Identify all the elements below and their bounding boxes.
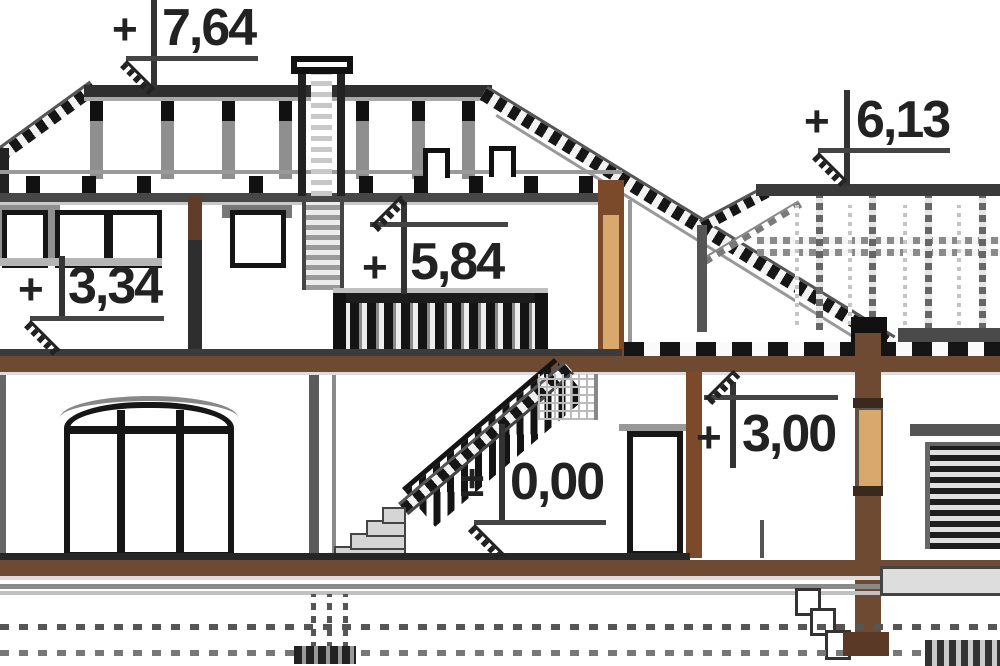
roof-joist bbox=[579, 176, 593, 194]
door-lintel bbox=[619, 424, 689, 431]
wood-frame-wall-tan-infill bbox=[603, 215, 619, 349]
marker-leader-line bbox=[474, 520, 606, 525]
floor-slab-underline bbox=[0, 372, 1000, 375]
roof-joist bbox=[469, 176, 483, 194]
door bbox=[627, 431, 683, 557]
wall-inner-line bbox=[628, 200, 632, 352]
marker-leader-line bbox=[370, 222, 508, 227]
foundation-hatch-right bbox=[925, 640, 1000, 666]
marker-ref-line bbox=[844, 90, 850, 186]
grade-line-light bbox=[0, 591, 1000, 595]
terrace-grade-band bbox=[880, 566, 1000, 596]
wing-dotted-stud bbox=[903, 205, 907, 325]
floor-line bbox=[0, 349, 622, 356]
wood-post-panel-cap bbox=[853, 486, 883, 496]
collar-frame bbox=[423, 148, 450, 178]
roof-joist bbox=[524, 176, 538, 194]
marker-ref-line bbox=[59, 256, 65, 320]
interior-wall bbox=[309, 375, 319, 557]
marker-prefix: + bbox=[362, 246, 388, 290]
roof-joist bbox=[137, 176, 151, 194]
marker-value: 0,00 bbox=[510, 456, 603, 508]
wing-post bbox=[816, 196, 823, 330]
roof-joist bbox=[82, 176, 96, 194]
roof-post bbox=[356, 101, 369, 179]
roof-post bbox=[90, 101, 103, 179]
wing-post bbox=[869, 196, 876, 330]
wing-dotted-stud bbox=[957, 205, 961, 325]
roof-post bbox=[222, 101, 235, 179]
chimney-shaft-lower bbox=[302, 202, 344, 290]
roof-post bbox=[462, 101, 475, 179]
chimney-wall-left bbox=[298, 74, 306, 196]
attic-railing-post bbox=[333, 293, 346, 353]
wing-post bbox=[979, 196, 986, 330]
interior-wall-line bbox=[332, 375, 336, 557]
marker-leader-line bbox=[30, 316, 164, 321]
marker-ref-line bbox=[151, 0, 157, 88]
wing-dotted-stud bbox=[848, 205, 852, 325]
marker-ref-line bbox=[401, 202, 407, 294]
wing-dotted-rail bbox=[757, 249, 1000, 256]
marker-prefix: + bbox=[112, 8, 138, 52]
roof-post bbox=[279, 101, 292, 179]
wood-post-panel-cap bbox=[853, 398, 883, 408]
exterior-wall-left bbox=[0, 375, 6, 557]
marker-value: 6,13 bbox=[856, 94, 949, 146]
marker-value: 7,64 bbox=[162, 2, 255, 54]
wing-roof-band bbox=[756, 184, 1000, 196]
roof-joist bbox=[359, 176, 373, 194]
roof-post bbox=[161, 101, 174, 179]
post-footing bbox=[843, 632, 889, 656]
marker-value: 5,84 bbox=[410, 236, 503, 288]
wing-dotted-stud bbox=[795, 205, 799, 325]
attic-railing-toprail bbox=[333, 293, 548, 303]
marker-prefix: ± bbox=[460, 460, 484, 504]
attic-railing-post bbox=[535, 293, 548, 353]
attic-railing-slats bbox=[333, 303, 548, 353]
grade-line bbox=[0, 584, 1000, 589]
slab-underline bbox=[0, 576, 1000, 580]
wing-ceiling-band bbox=[898, 328, 1000, 342]
stair-step bbox=[382, 507, 406, 524]
ground-slab-brown bbox=[0, 560, 1000, 576]
roof-joist bbox=[26, 176, 40, 194]
chimney-wall-right bbox=[337, 74, 345, 196]
wing-post bbox=[925, 196, 932, 330]
chimney-cap-slit bbox=[297, 62, 347, 67]
marker-value: 3,34 bbox=[68, 260, 161, 312]
marker-ref-line bbox=[499, 424, 505, 520]
terrace-top-bar bbox=[910, 424, 1000, 436]
floor-slab-brown bbox=[0, 356, 1000, 372]
wing-dotted-rail bbox=[757, 237, 1000, 244]
wood-wall-door-side bbox=[686, 372, 702, 558]
roof-joist bbox=[414, 176, 428, 194]
slab-top-line bbox=[0, 553, 690, 560]
marker-arrow-icon bbox=[812, 152, 847, 187]
chimney-flue bbox=[311, 74, 332, 196]
wood-post-attic bbox=[188, 196, 202, 352]
marker-value: 3,00 bbox=[742, 408, 835, 460]
marker-prefix: + bbox=[18, 268, 44, 312]
roof-joist bbox=[249, 176, 263, 194]
wall-upper-wing bbox=[697, 225, 707, 332]
section-drawing-sheet: + 7,64 + 6,13 + 3,34 + 5,84 ± 0,00 bbox=[0, 0, 1000, 666]
foundation-footing-block bbox=[294, 646, 356, 664]
marker-leader-line bbox=[704, 395, 838, 400]
arched-window-transom bbox=[70, 426, 228, 434]
foundation-dash-line bbox=[0, 624, 1000, 630]
collar-frame bbox=[489, 146, 516, 177]
marker-prefix: + bbox=[804, 100, 830, 144]
marker-prefix: + bbox=[696, 416, 722, 460]
wood-post-tan-panel bbox=[857, 408, 883, 490]
terrace-step-block bbox=[925, 442, 1000, 549]
stair-landing-hatch bbox=[538, 374, 598, 420]
roof-slope-right-inner-line bbox=[495, 114, 862, 343]
wing-floor-joists bbox=[624, 342, 1000, 356]
attic-window bbox=[230, 210, 286, 268]
small-wall-line bbox=[760, 520, 764, 558]
